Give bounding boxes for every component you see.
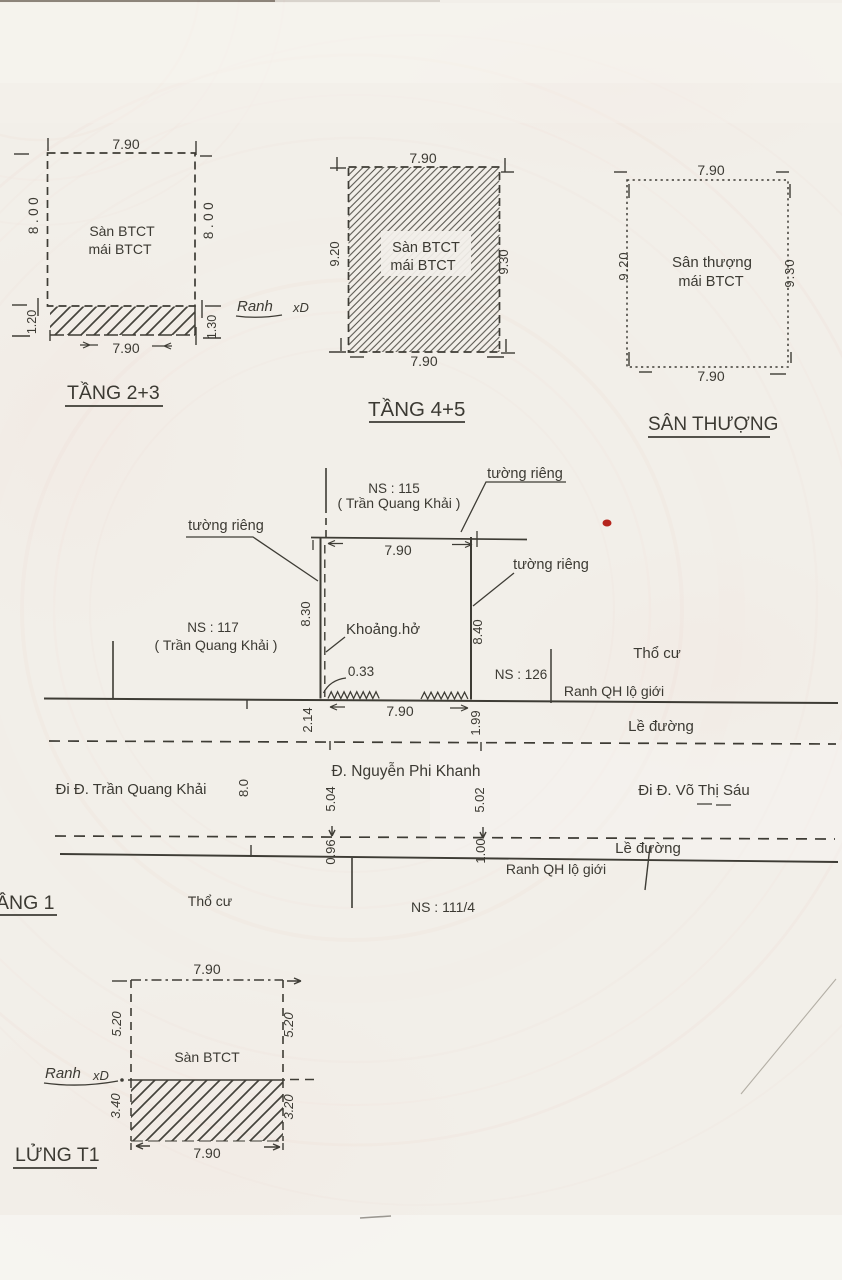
svg-text:9.30: 9.30 bbox=[496, 249, 511, 274]
svg-text:mái BTCT: mái BTCT bbox=[678, 274, 743, 290]
svg-text:Lề đường: Lề đường bbox=[628, 718, 694, 735]
svg-text:8.30: 8.30 bbox=[298, 601, 313, 626]
svg-text:Khoảng.hở: Khoảng.hở bbox=[346, 621, 420, 638]
svg-text:9.30: 9.30 bbox=[782, 258, 797, 287]
svg-text:1.00: 1.00 bbox=[473, 838, 488, 863]
svg-text:Ranh QH lộ giới: Ranh QH lộ giới bbox=[564, 683, 664, 699]
svg-text:Ranh: Ranh bbox=[45, 1065, 81, 1082]
svg-text:7.90: 7.90 bbox=[410, 353, 437, 369]
svg-text:7.90: 7.90 bbox=[384, 542, 411, 558]
svg-text:Ranh: Ranh bbox=[237, 298, 273, 315]
svg-text:5.20: 5.20 bbox=[281, 1012, 296, 1038]
svg-text:SÂN THƯỢNG: SÂN THƯỢNG bbox=[648, 413, 778, 435]
svg-text:Thổ cư: Thổ cư bbox=[188, 893, 232, 909]
svg-text:3.40: 3.40 bbox=[108, 1093, 123, 1119]
svg-text:tường riêng: tường riêng bbox=[487, 466, 563, 482]
svg-text:xD: xD bbox=[292, 300, 309, 315]
svg-text:ẦNG 1: ẦNG 1 bbox=[0, 891, 55, 914]
svg-text:NS : 111/4: NS : 111/4 bbox=[411, 899, 475, 915]
svg-text:9.20: 9.20 bbox=[616, 251, 631, 280]
svg-text:mái BTCT: mái BTCT bbox=[390, 258, 455, 274]
svg-text:LỬNG T1: LỬNG T1 bbox=[15, 1142, 100, 1166]
svg-text:8.0: 8.0 bbox=[236, 779, 251, 797]
svg-text:5.20: 5.20 bbox=[109, 1011, 124, 1037]
svg-text:9.20: 9.20 bbox=[327, 241, 342, 266]
svg-text:7.90: 7.90 bbox=[697, 162, 724, 178]
svg-text:NS : 117: NS : 117 bbox=[187, 620, 239, 635]
svg-text:7.90: 7.90 bbox=[697, 368, 724, 384]
svg-text:xD: xD bbox=[92, 1068, 109, 1083]
svg-text:7.90: 7.90 bbox=[112, 136, 139, 152]
svg-text:Thổ cư: Thổ cư bbox=[633, 645, 681, 662]
svg-text:7.90: 7.90 bbox=[193, 961, 220, 977]
svg-text:Sân thượng: Sân thượng bbox=[672, 254, 752, 271]
svg-text:8.00: 8.00 bbox=[201, 199, 216, 239]
svg-text:8.00: 8.00 bbox=[26, 194, 41, 234]
svg-text:tường riêng: tường riêng bbox=[513, 557, 589, 573]
svg-text:Lề đường: Lề đường bbox=[615, 840, 681, 857]
svg-text:Đ. Nguyễn Phi Khanh: Đ. Nguyễn Phi Khanh bbox=[331, 763, 480, 780]
svg-text:0.33: 0.33 bbox=[348, 664, 374, 679]
svg-text:5.04: 5.04 bbox=[323, 786, 338, 811]
svg-text:( Trần Quang Khải ): ( Trần Quang Khải ) bbox=[155, 637, 278, 653]
svg-text:Sàn BTCT: Sàn BTCT bbox=[174, 1049, 240, 1065]
svg-text:7.90: 7.90 bbox=[409, 150, 436, 166]
svg-text:5.02: 5.02 bbox=[472, 787, 487, 812]
svg-text:7.90: 7.90 bbox=[112, 340, 139, 356]
svg-text:0.96: 0.96 bbox=[323, 839, 338, 864]
svg-text:TẦNG 2+3: TẦNG 2+3 bbox=[67, 381, 160, 404]
svg-text:tường riêng: tường riêng bbox=[188, 518, 264, 534]
svg-text:1.99: 1.99 bbox=[468, 710, 483, 735]
svg-text:7.90: 7.90 bbox=[386, 703, 413, 719]
svg-text:Đi Đ. Trần Quang Khải: Đi Đ. Trần Quang Khải bbox=[56, 781, 207, 798]
svg-text:1.20: 1.20 bbox=[25, 310, 39, 334]
svg-text:TẦNG 4+5: TẦNG 4+5 bbox=[368, 398, 465, 421]
svg-text:7.90: 7.90 bbox=[193, 1145, 220, 1161]
svg-text:( Trần Quang Khải ): ( Trần Quang Khải ) bbox=[338, 495, 461, 511]
svg-text:mái BTCT: mái BTCT bbox=[89, 241, 152, 257]
svg-text:Đi Đ. Võ Thị Sáu: Đi Đ. Võ Thị Sáu bbox=[638, 782, 749, 799]
svg-text:NS : 126: NS : 126 bbox=[495, 667, 548, 682]
svg-text:NS : 115: NS : 115 bbox=[368, 481, 420, 496]
svg-text:Ranh QH lộ giới: Ranh QH lộ giới bbox=[506, 861, 606, 877]
svg-text:1.30: 1.30 bbox=[205, 315, 219, 339]
svg-text:Sàn BTCT: Sàn BTCT bbox=[89, 223, 155, 239]
svg-text:8.40: 8.40 bbox=[470, 619, 485, 644]
svg-text:2.14: 2.14 bbox=[300, 707, 315, 732]
svg-text:3.20: 3.20 bbox=[281, 1094, 296, 1120]
svg-text:Sàn BTCT: Sàn BTCT bbox=[392, 240, 460, 256]
